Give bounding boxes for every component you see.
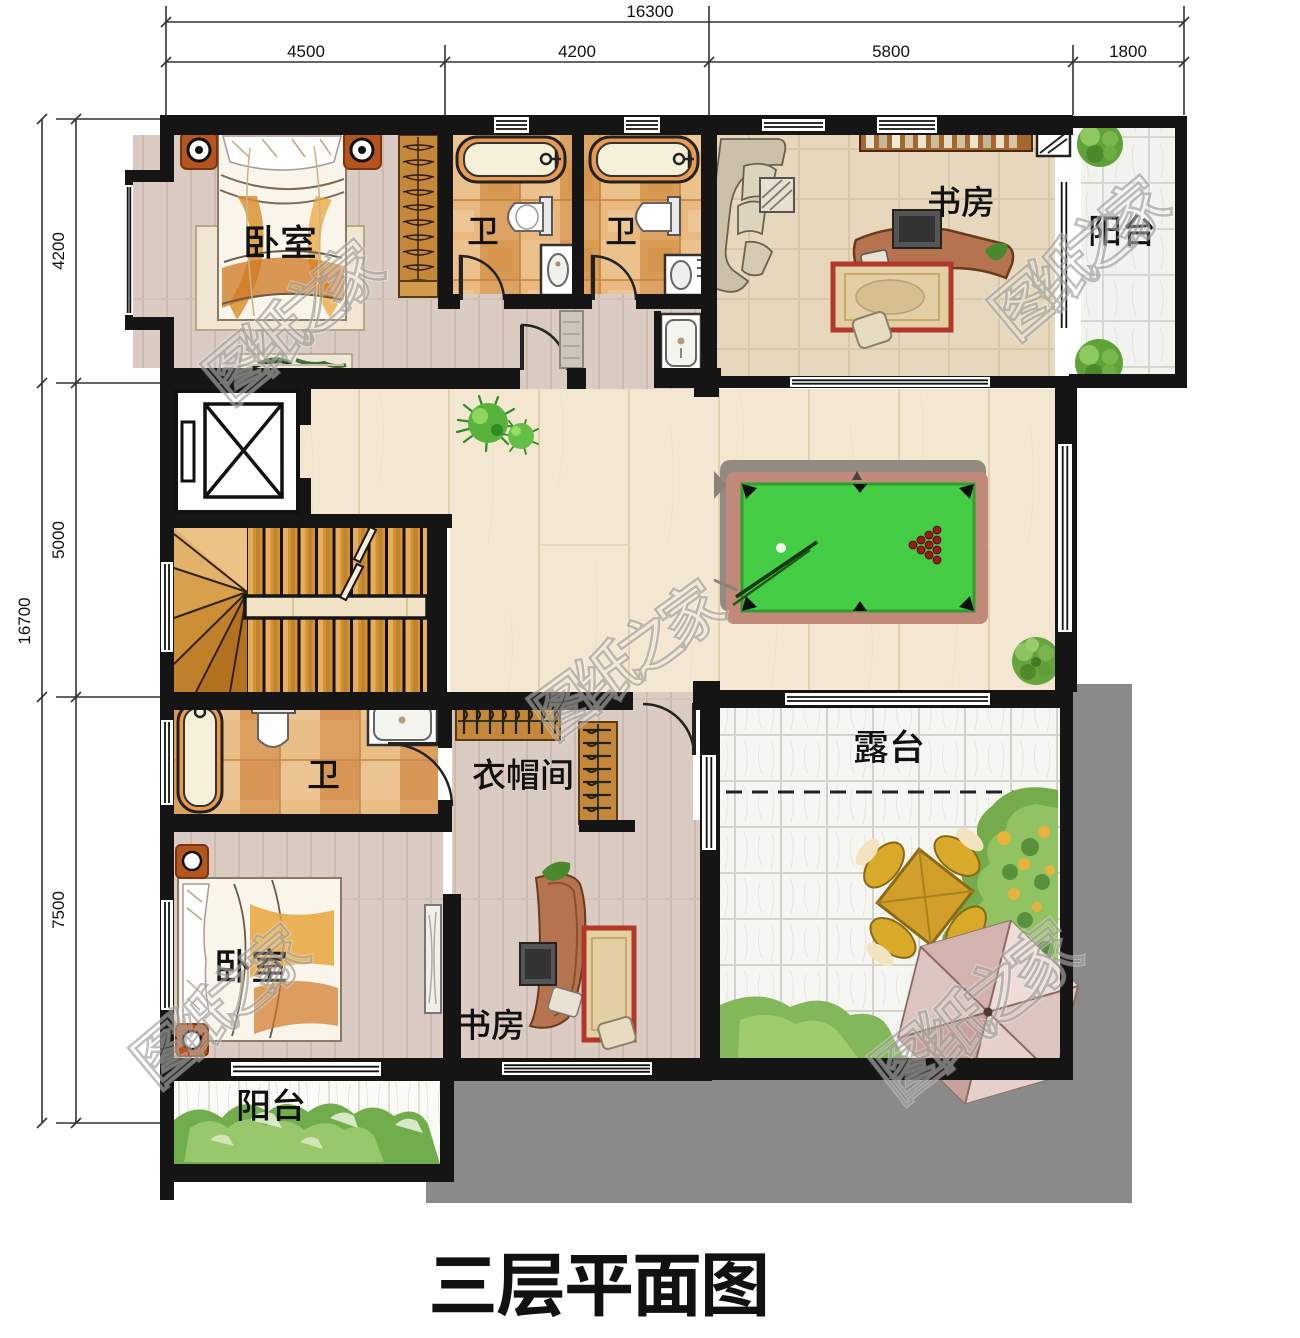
svg-text:4500: 4500 — [287, 42, 325, 61]
svg-text:5800: 5800 — [872, 42, 910, 61]
svg-text:4200: 4200 — [49, 232, 68, 270]
svg-text:5000: 5000 — [49, 521, 68, 559]
svg-text:16700: 16700 — [15, 597, 34, 644]
svg-text:4200: 4200 — [558, 42, 596, 61]
svg-text:16300: 16300 — [626, 2, 673, 21]
svg-text:1800: 1800 — [1109, 42, 1147, 61]
svg-text:7500: 7500 — [49, 891, 68, 929]
